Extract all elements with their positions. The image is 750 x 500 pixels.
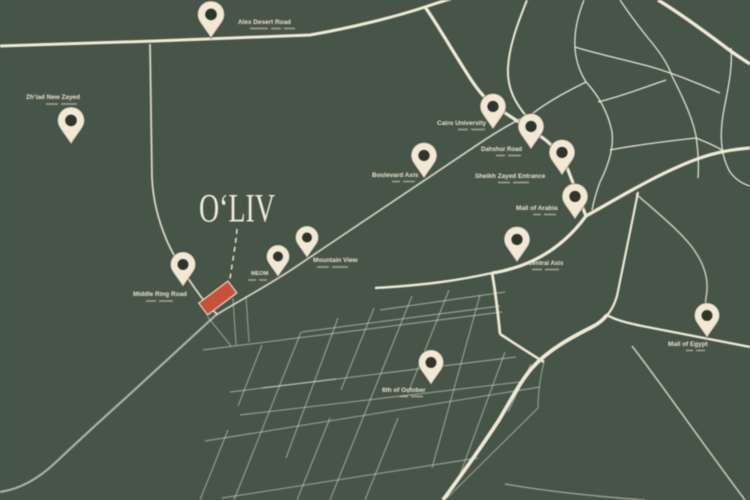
svg-text:Middle Ring Road: Middle Ring Road (133, 291, 187, 298)
svg-text:O‘LIV: O‘LIV (199, 186, 275, 231)
svg-text:6th of October: 6th of October (382, 387, 426, 394)
svg-text:Cairo University: Cairo University (437, 120, 486, 127)
svg-text:Mall of Arabia: Mall of Arabia (516, 205, 558, 212)
svg-text:Dahshur Road: Dahshur Road (481, 147, 522, 153)
svg-text:Zh’iad New Zayed: Zh’iad New Zayed (26, 94, 80, 101)
svg-text:MEOM: MEOM (251, 271, 269, 277)
svg-text:Alex Desert Road: Alex Desert Road (238, 19, 291, 26)
svg-text:Boulevard Axis: Boulevard Axis (372, 172, 419, 179)
svg-text:Mountain View: Mountain View (313, 257, 358, 264)
svg-text:Mall of Egypt: Mall of Egypt (668, 341, 709, 348)
svg-text:Central Axis: Central Axis (528, 260, 564, 267)
svg-text:Sheikh Zayed Entrance: Sheikh Zayed Entrance (475, 173, 546, 180)
